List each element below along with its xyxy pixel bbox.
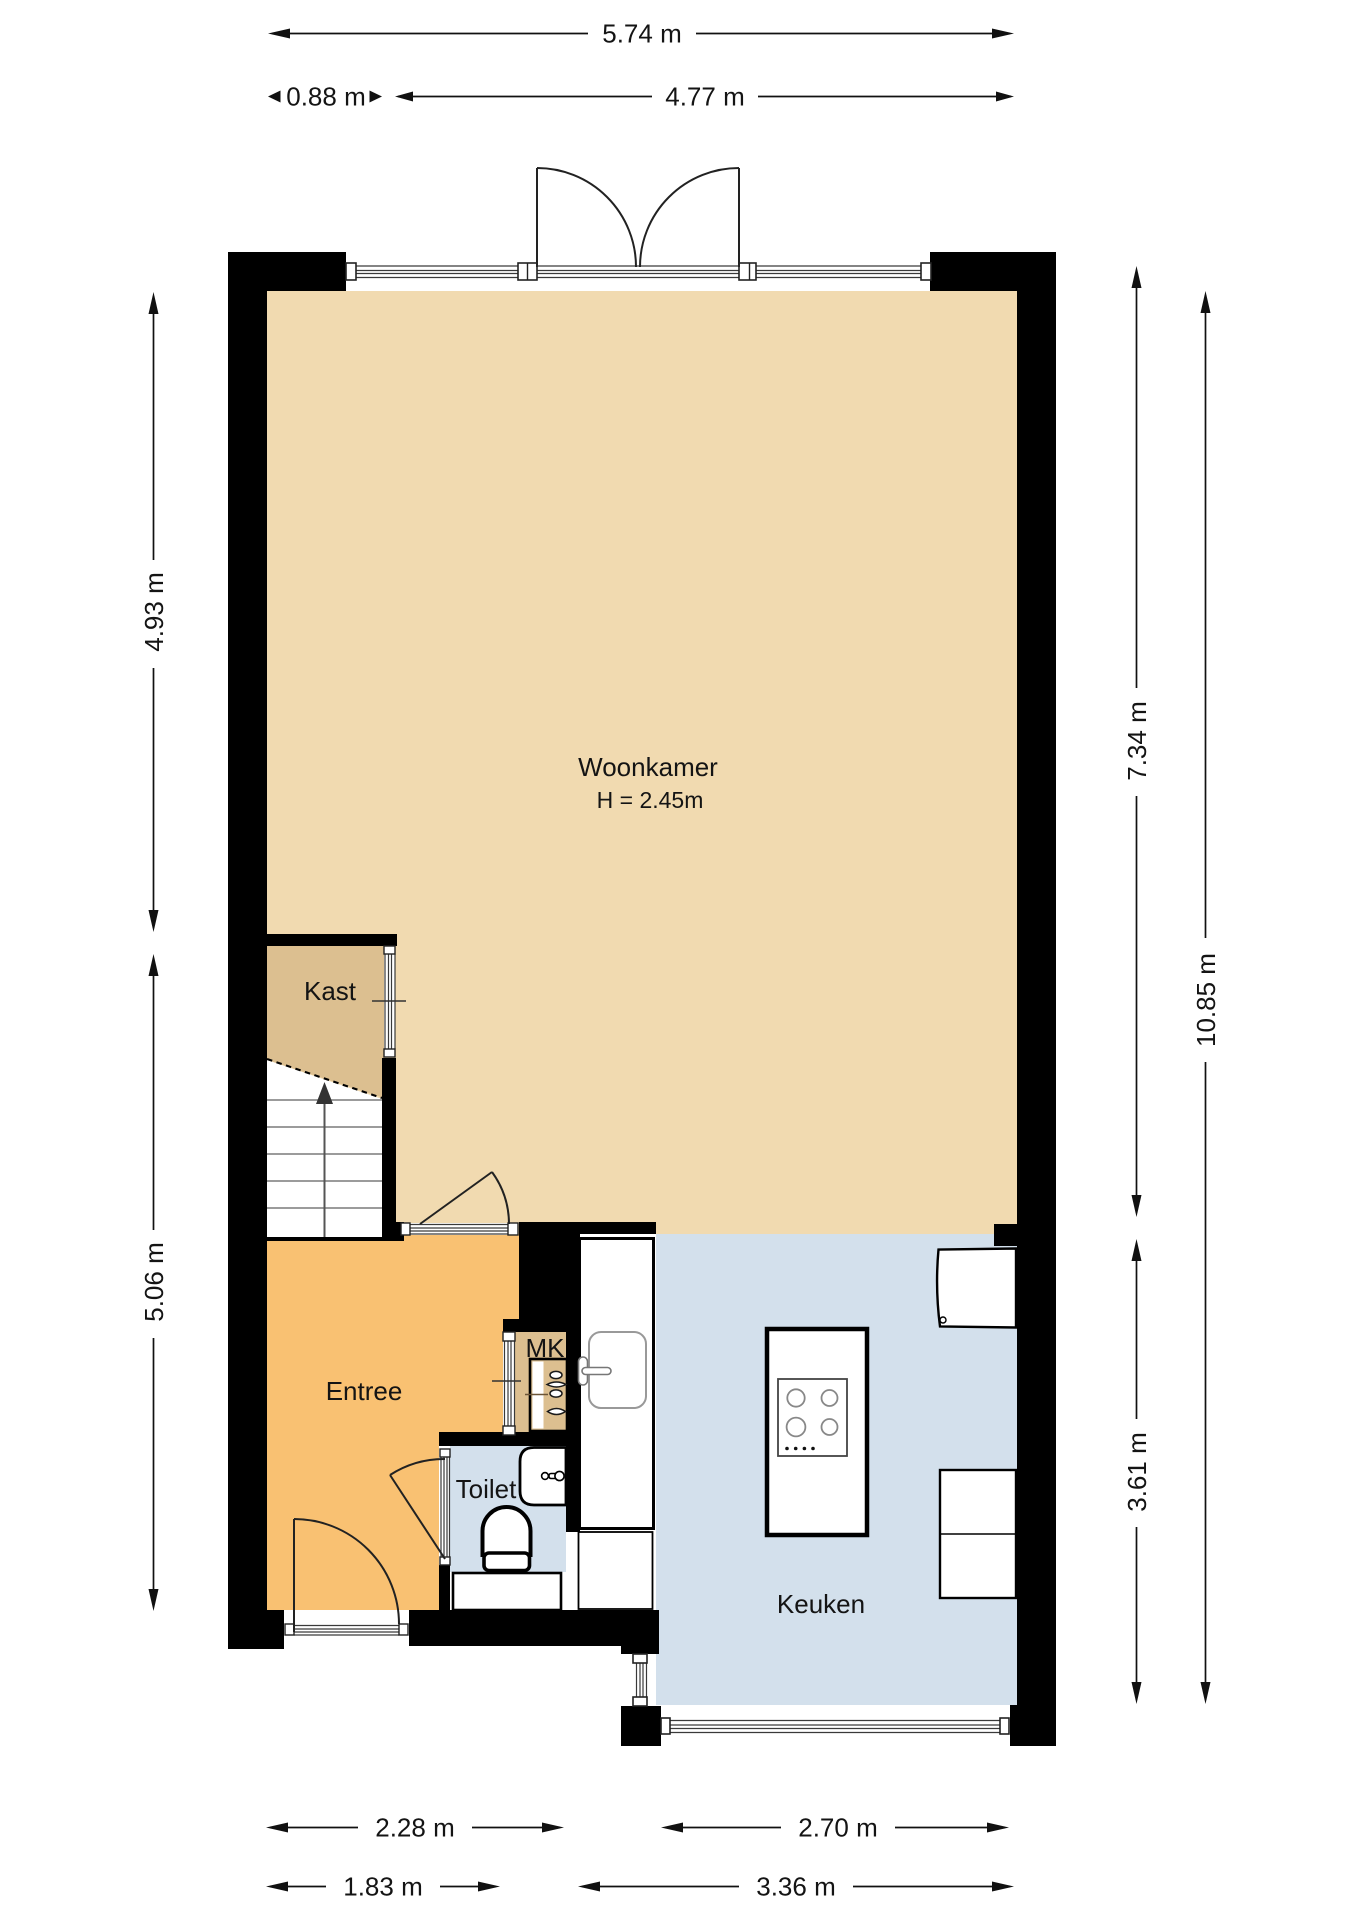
svg-text:2.28 m: 2.28 m — [375, 1813, 455, 1843]
svg-text:3.36 m: 3.36 m — [756, 1872, 836, 1902]
svg-text:3.61 m: 3.61 m — [1122, 1432, 1152, 1512]
svg-text:Keuken: Keuken — [777, 1589, 865, 1619]
svg-text:H = 2.45m: H = 2.45m — [597, 787, 704, 813]
svg-text:5.06 m: 5.06 m — [139, 1242, 169, 1322]
svg-text:1.83 m: 1.83 m — [343, 1872, 423, 1902]
svg-text:7.34 m: 7.34 m — [1122, 701, 1152, 781]
svg-text:4.93 m: 4.93 m — [139, 572, 169, 652]
svg-text:Woonkamer: Woonkamer — [578, 752, 718, 782]
svg-text:Entree: Entree — [326, 1376, 403, 1406]
svg-text:10.85 m: 10.85 m — [1191, 953, 1221, 1047]
svg-text:0.88 m: 0.88 m — [286, 82, 366, 112]
svg-text:5.74 m: 5.74 m — [602, 19, 682, 49]
svg-text:Toilet: Toilet — [456, 1474, 517, 1504]
svg-text:Kast: Kast — [304, 976, 357, 1006]
svg-text:2.70 m: 2.70 m — [798, 1813, 878, 1843]
svg-text:4.77 m: 4.77 m — [665, 82, 745, 112]
svg-text:MK: MK — [526, 1333, 566, 1363]
